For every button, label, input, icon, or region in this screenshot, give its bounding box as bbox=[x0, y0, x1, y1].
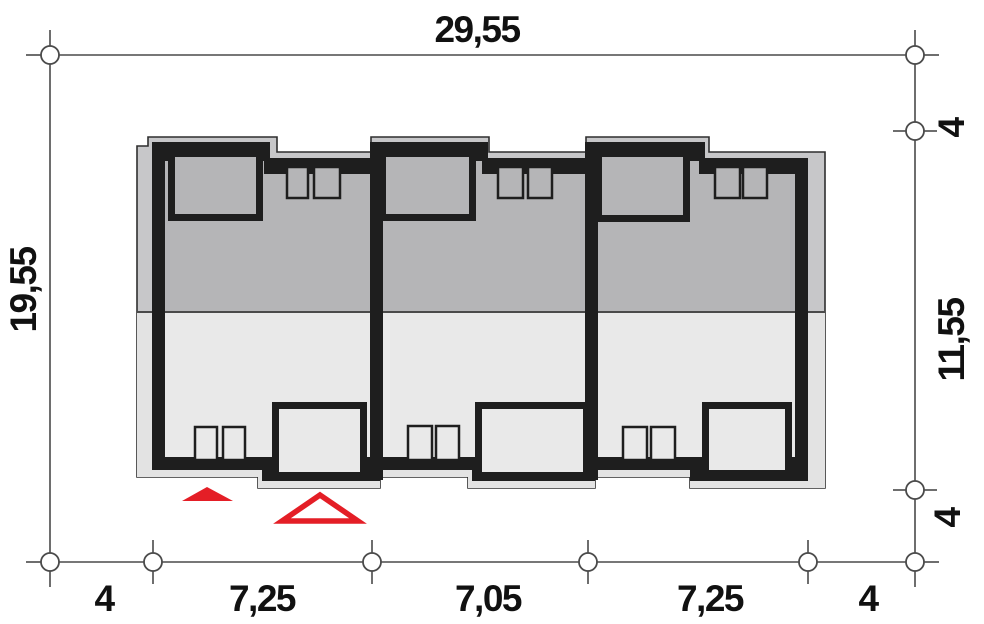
node-bottom-left bbox=[41, 553, 59, 571]
dim-label-right-1155: 11,55 bbox=[931, 298, 972, 382]
unit2-upper-rect-2 bbox=[528, 167, 552, 198]
unit1-lower-rect-1 bbox=[195, 427, 217, 460]
unit1-upper-rect-1 bbox=[287, 167, 308, 198]
dim-label-bottom-4-right: 4 bbox=[858, 578, 879, 619]
unit2-lower-rect-1 bbox=[408, 426, 432, 460]
upper-rooms bbox=[168, 150, 690, 222]
node-top-right bbox=[906, 46, 924, 64]
node-bottom-4 bbox=[799, 553, 817, 571]
right-gable-wall bbox=[795, 158, 808, 480]
dim-label-right-4-bottom: 4 bbox=[927, 507, 968, 528]
site-plan-page: 29,55 19,55 4 11,55 4 4 7,25 7,05 7,25 4 bbox=[0, 0, 984, 624]
unit2-upper-rect-1 bbox=[498, 167, 523, 198]
left-gable-wall bbox=[152, 142, 165, 470]
unit3-upper-room bbox=[602, 157, 683, 215]
node-right-upper bbox=[906, 122, 924, 140]
unit2-lower-room bbox=[482, 409, 583, 472]
dim-label-bottom-725-right: 7,25 bbox=[677, 578, 744, 619]
unit2-upper-room bbox=[386, 157, 469, 214]
unit1-lower-room bbox=[279, 409, 360, 472]
node-right-lower bbox=[906, 481, 924, 499]
node-bottom-3 bbox=[579, 553, 597, 571]
unit1-upper-rect-2 bbox=[314, 167, 340, 198]
unit1-lower-rect-2 bbox=[223, 427, 245, 460]
unit3-upper-rect-2 bbox=[743, 167, 767, 198]
unit3-lower-rect-1 bbox=[623, 427, 647, 460]
node-bottom-1 bbox=[144, 553, 162, 571]
site-plan-drawing: 29,55 19,55 4 11,55 4 4 7,25 7,05 7,25 4 bbox=[0, 0, 984, 624]
lower-rooms bbox=[272, 402, 792, 480]
dim-label-bottom-705: 7,05 bbox=[455, 578, 522, 619]
building-footprint bbox=[130, 137, 835, 521]
dim-label-bottom-4-left: 4 bbox=[94, 578, 115, 619]
unit1-upper-room bbox=[175, 157, 256, 214]
unit3-lower-room bbox=[709, 409, 785, 470]
dim-label-top-total: 29,55 bbox=[434, 9, 520, 50]
entrance-outlined-triangle-icon bbox=[282, 495, 358, 521]
unit2-lower-rect-2 bbox=[436, 426, 459, 460]
node-bottom-2 bbox=[363, 553, 381, 571]
node-top-left bbox=[41, 46, 59, 64]
dim-label-bottom-725-left: 7,25 bbox=[229, 578, 296, 619]
unit3-upper-rect-1 bbox=[715, 167, 740, 198]
entrance-filled-triangle-icon bbox=[182, 487, 233, 501]
node-bottom-right bbox=[906, 553, 924, 571]
unit3-lower-rect-2 bbox=[651, 427, 675, 460]
dim-label-left-total: 19,55 bbox=[3, 247, 44, 333]
dim-label-right-4-top: 4 bbox=[931, 117, 972, 138]
